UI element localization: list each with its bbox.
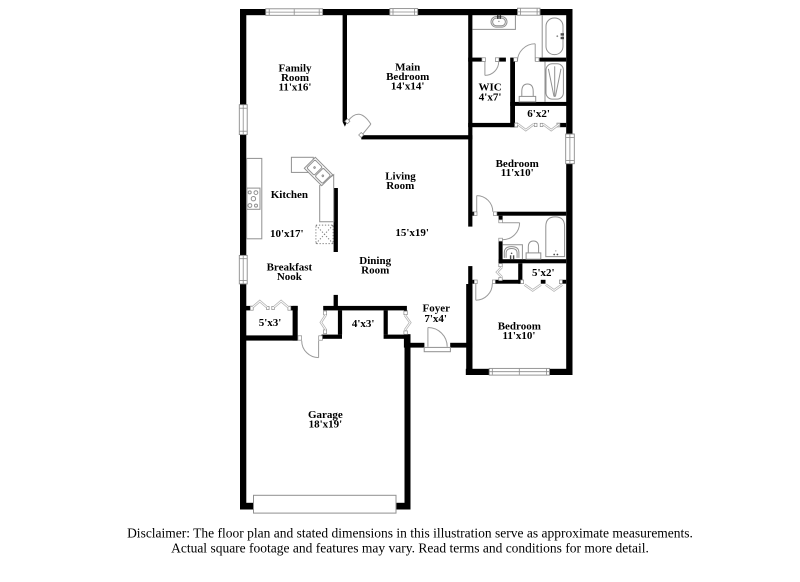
svg-text:4'x7': 4'x7' [479,91,502,103]
svg-text:18'x19': 18'x19' [309,418,343,430]
svg-text:5'x3': 5'x3' [259,317,282,329]
svg-text:11'x10': 11'x10' [502,330,535,342]
svg-text:Nook: Nook [277,271,303,283]
svg-text:Room: Room [361,264,389,276]
svg-text:Actual square footage and feat: Actual square footage and features may v… [171,541,649,556]
svg-text:5'x2': 5'x2' [532,267,555,279]
svg-text:11'x16': 11'x16' [278,81,311,93]
svg-text:4'x3': 4'x3' [352,318,375,330]
svg-text:14'x14': 14'x14' [391,81,425,93]
svg-text:15'x19': 15'x19' [395,227,429,239]
svg-text:Disclaimer: The floor plan and: Disclaimer: The floor plan and stated di… [127,526,693,541]
svg-text:10'x17': 10'x17' [270,228,304,240]
svg-text:Kitchen: Kitchen [271,189,308,201]
svg-text:6'x2': 6'x2' [527,108,550,120]
svg-text:11'x10': 11'x10' [501,167,534,179]
svg-text:Room: Room [386,180,414,192]
svg-text:7'x4': 7'x4' [424,313,447,325]
